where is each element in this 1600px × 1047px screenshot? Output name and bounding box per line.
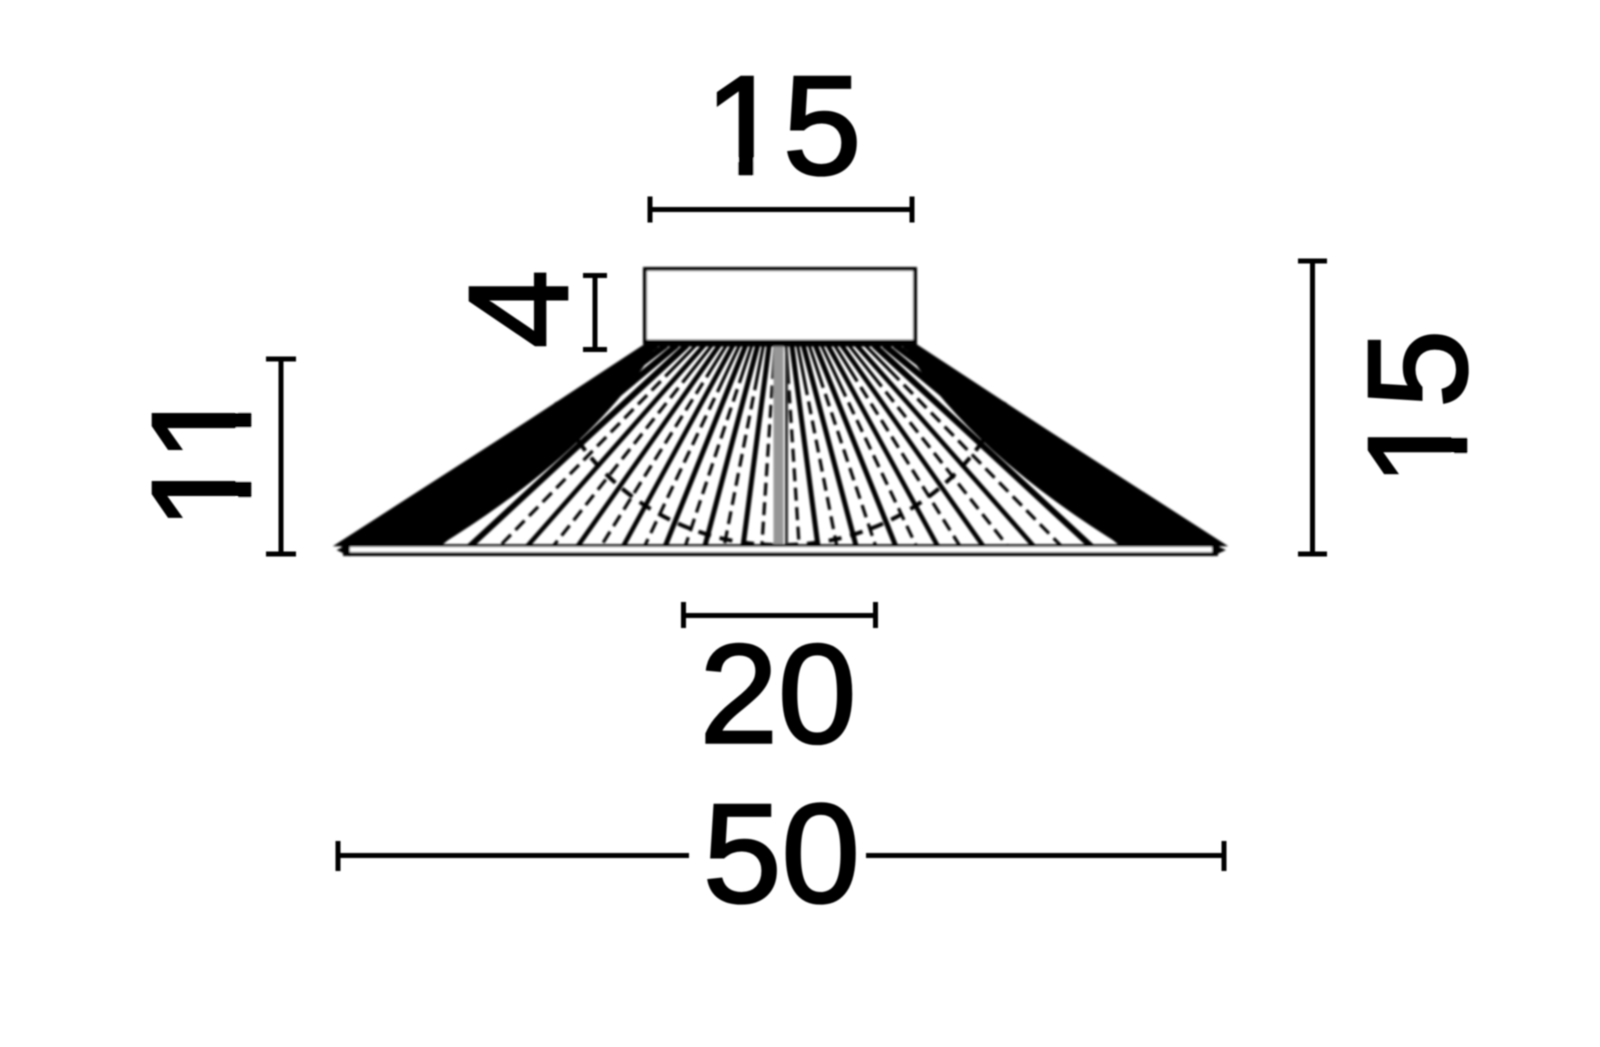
svg-text:15: 15: [1338, 330, 1496, 487]
svg-text:4: 4: [439, 270, 597, 348]
svg-text:15: 15: [705, 46, 862, 204]
svg-text:11: 11: [122, 384, 280, 530]
svg-text:50: 50: [703, 774, 860, 932]
svg-text:20: 20: [700, 615, 857, 773]
